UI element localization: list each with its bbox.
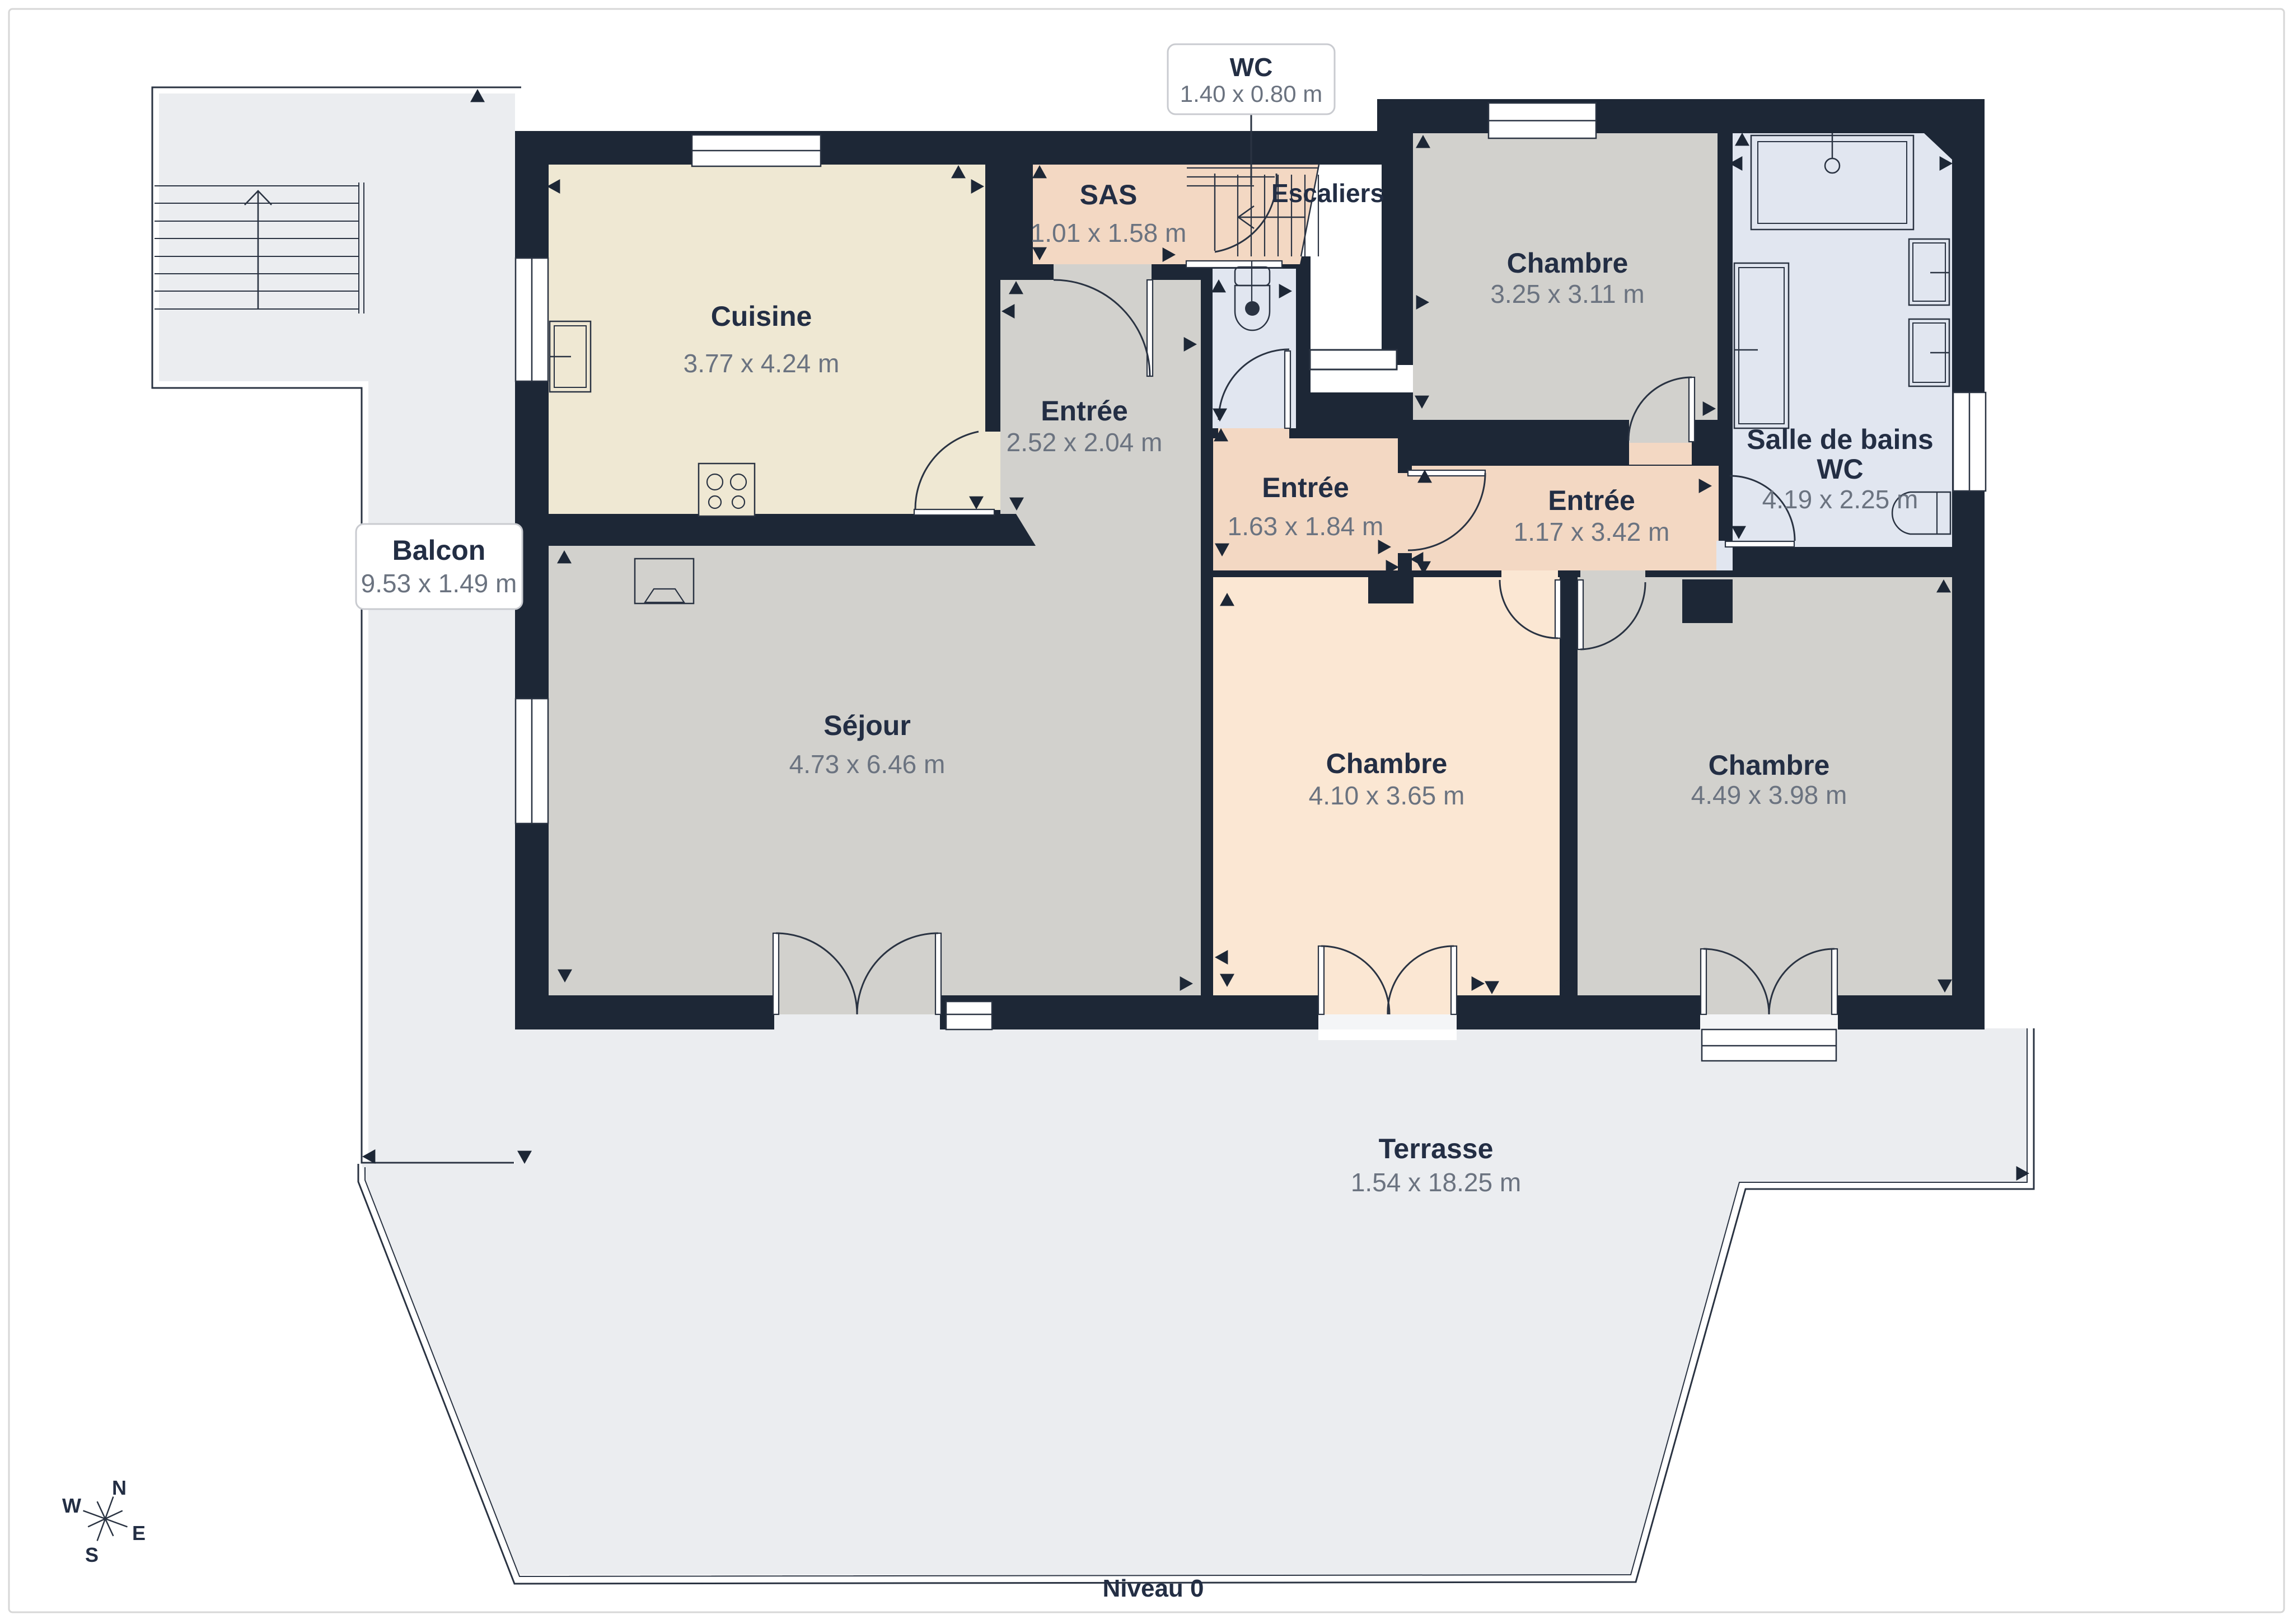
- svg-text:4.10 x 3.65 m: 4.10 x 3.65 m: [1309, 781, 1465, 810]
- svg-text:Chambre: Chambre: [1507, 247, 1629, 279]
- svg-text:Escaliers: Escaliers: [1271, 179, 1384, 208]
- svg-text:Chambre: Chambre: [1709, 750, 1830, 781]
- svg-text:WC: WC: [1230, 53, 1273, 82]
- svg-text:4.19 x 2.25 m: 4.19 x 2.25 m: [1762, 485, 1918, 514]
- svg-text:Balcon: Balcon: [392, 535, 486, 566]
- svg-text:Entrée: Entrée: [1548, 485, 1635, 516]
- svg-text:4.73 x 6.46 m: 4.73 x 6.46 m: [789, 750, 946, 779]
- svg-text:S: S: [85, 1543, 99, 1566]
- svg-text:WC: WC: [1817, 453, 1863, 485]
- svg-text:2.52 x 2.04 m: 2.52 x 2.04 m: [1007, 428, 1163, 457]
- svg-text:Chambre: Chambre: [1326, 748, 1448, 779]
- svg-text:9.53 x 1.49 m: 9.53 x 1.49 m: [361, 569, 517, 598]
- svg-text:Cuisine: Cuisine: [711, 301, 812, 332]
- svg-text:Niveau 0: Niveau 0: [1103, 1575, 1204, 1602]
- svg-text:W: W: [62, 1494, 81, 1517]
- svg-text:3.77 x 4.24 m: 3.77 x 4.24 m: [684, 349, 840, 378]
- svg-text:Terrasse: Terrasse: [1379, 1133, 1494, 1164]
- svg-text:E: E: [132, 1522, 146, 1545]
- svg-text:N: N: [112, 1476, 127, 1499]
- svg-text:1.54 x 18.25 m: 1.54 x 18.25 m: [1351, 1168, 1521, 1197]
- svg-text:1.40 x 0.80 m: 1.40 x 0.80 m: [1180, 81, 1322, 107]
- svg-text:1.17 x 3.42 m: 1.17 x 3.42 m: [1514, 517, 1670, 546]
- svg-text:Entrée: Entrée: [1262, 472, 1349, 503]
- svg-text:SAS: SAS: [1080, 179, 1138, 210]
- svg-text:Entrée: Entrée: [1041, 395, 1128, 427]
- svg-text:4.49 x 3.98 m: 4.49 x 3.98 m: [1691, 780, 1847, 809]
- svg-text:Séjour: Séjour: [823, 710, 911, 741]
- svg-text:Salle de bains: Salle de bains: [1747, 424, 1933, 455]
- svg-text:3.25 x 3.11 m: 3.25 x 3.11 m: [1490, 279, 1644, 308]
- svg-text:1.63 x 1.84 m: 1.63 x 1.84 m: [1228, 512, 1384, 541]
- svg-text:1.01 x 1.58 m: 1.01 x 1.58 m: [1031, 218, 1187, 247]
